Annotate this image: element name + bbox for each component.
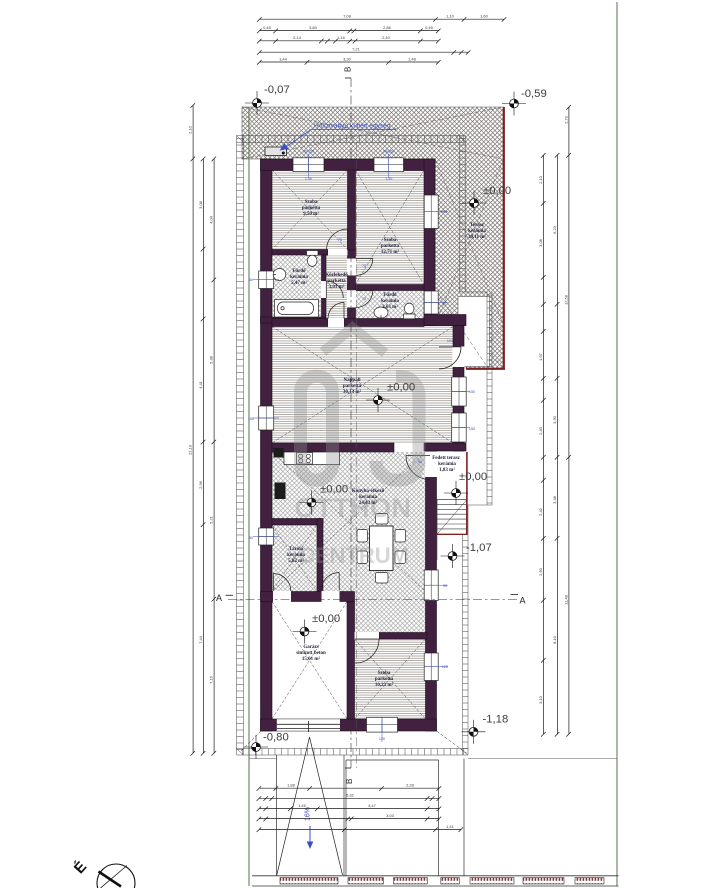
svg-text:2,28: 2,28 (406, 783, 415, 788)
svg-text:1,41: 1,41 (446, 824, 455, 829)
svg-text:3,10: 3,10 (538, 695, 543, 704)
svg-text:90: 90 (418, 460, 422, 464)
svg-text:3,03: 3,03 (386, 813, 395, 818)
svg-text:7,44: 7,44 (198, 635, 203, 644)
svg-text:2,96: 2,96 (198, 480, 203, 489)
svg-text:2,86: 2,86 (383, 25, 392, 30)
svg-text:4,04: 4,04 (209, 215, 214, 224)
svg-text:0,45: 0,45 (263, 25, 272, 30)
svg-text:±0,00: ±0,00 (459, 471, 487, 483)
svg-text:0,45: 0,45 (425, 25, 434, 30)
svg-text:Fürdőkerámia5,47 m²: Fürdőkerámia5,47 m² (290, 269, 308, 286)
svg-text:1,48: 1,48 (408, 56, 417, 61)
svg-text:150: 150 (469, 390, 475, 394)
svg-text:7,21: 7,21 (352, 47, 361, 52)
svg-text:90/150: 90/150 (383, 150, 394, 154)
svg-text:B: B (345, 779, 354, 784)
svg-text:3,30: 3,30 (343, 56, 352, 61)
svg-text:-1,18: -1,18 (483, 714, 509, 726)
svg-text:12,58: 12,58 (563, 294, 568, 305)
svg-text:-0,07: -0,07 (264, 84, 290, 96)
svg-text:2,42: 2,42 (538, 507, 543, 516)
svg-text:B: B (344, 67, 353, 72)
svg-text:Tárolókerámia5,02 m²: Tárolókerámia5,02 m² (287, 547, 305, 564)
svg-text:±0,00: ±0,00 (320, 484, 348, 496)
svg-text:3,08: 3,08 (538, 238, 543, 247)
svg-text:OTTHON: OTTHON (295, 493, 412, 523)
svg-text:150: 150 (248, 417, 254, 421)
svg-text:±0,00: ±0,00 (312, 613, 340, 625)
svg-text:4,47: 4,47 (368, 803, 377, 808)
svg-text:Teraszkerámia39,11 m²: Teraszkerámia39,11 m² (468, 223, 486, 240)
svg-text:Fürdőkerámia3,63 m²: Fürdőkerámia3,63 m² (381, 293, 399, 310)
svg-text:1,45: 1,45 (298, 803, 307, 808)
svg-text:6,23: 6,23 (552, 225, 557, 234)
svg-text:120: 120 (442, 665, 448, 669)
svg-text:1,97: 1,97 (538, 352, 543, 361)
svg-text:60: 60 (442, 301, 446, 305)
svg-text:4,41: 4,41 (198, 380, 203, 389)
svg-text:7,08: 7,08 (343, 14, 352, 19)
svg-text:1,16: 1,16 (337, 35, 346, 40)
svg-text:90/150: 90/150 (303, 150, 314, 154)
svg-text:-0,80: -0,80 (263, 732, 289, 744)
svg-text:2,14: 2,14 (293, 35, 302, 40)
svg-text:3,08: 3,08 (198, 200, 203, 209)
svg-text:8,10: 8,10 (552, 635, 557, 644)
svg-text:60: 60 (249, 278, 253, 282)
svg-text:90: 90 (443, 584, 447, 588)
svg-text:2,40: 2,40 (382, 35, 391, 40)
svg-text:1,44: 1,44 (279, 56, 288, 61)
svg-text:7,16: 7,16 (209, 675, 214, 684)
svg-text:A: A (216, 593, 222, 603)
svg-text:150: 150 (441, 210, 447, 214)
svg-text:3,38: 3,38 (552, 495, 557, 504)
svg-text:±0,00: ±0,00 (387, 382, 415, 394)
svg-text:5,32: 5,32 (346, 793, 355, 798)
svg-text:60: 60 (249, 536, 253, 540)
svg-text:Hőszivattyú kültéri egység: Hőszivattyú kültéri egység (314, 123, 391, 130)
svg-text:2,40: 2,40 (538, 426, 543, 435)
svg-text:1,60: 1,60 (480, 14, 489, 19)
svg-text:75: 75 (362, 264, 366, 268)
svg-text:2,79: 2,79 (563, 115, 568, 124)
svg-text:101: 101 (447, 339, 453, 343)
svg-text:75: 75 (362, 297, 366, 301)
svg-text:5,21: 5,21 (209, 515, 214, 524)
svg-text:±0,00: ±0,00 (483, 185, 511, 197)
svg-text:3,30: 3,30 (552, 415, 557, 424)
svg-text:75: 75 (338, 238, 342, 242)
svg-text:11,48: 11,48 (563, 594, 568, 604)
svg-text:2,10: 2,10 (188, 125, 193, 134)
svg-text:CENTRUM: CENTRUM (299, 543, 409, 568)
svg-text:A: A (520, 596, 526, 606)
svg-text:Nappaliparketta30,13 m²: Nappaliparketta30,13 m² (343, 378, 362, 395)
svg-text:5,38: 5,38 (209, 355, 214, 364)
svg-text:22,10: 22,10 (188, 444, 193, 455)
svg-text:-0,59: -0,59 (521, 88, 547, 100)
svg-text:1,10: 1,10 (446, 14, 455, 19)
svg-text:2,60: 2,60 (538, 567, 543, 576)
svg-text:1,88: 1,88 (287, 783, 296, 788)
svg-text:3,80: 3,80 (309, 25, 318, 30)
svg-text:-1,07: -1,07 (466, 542, 492, 554)
svg-text:2,10: 2,10 (538, 175, 543, 184)
